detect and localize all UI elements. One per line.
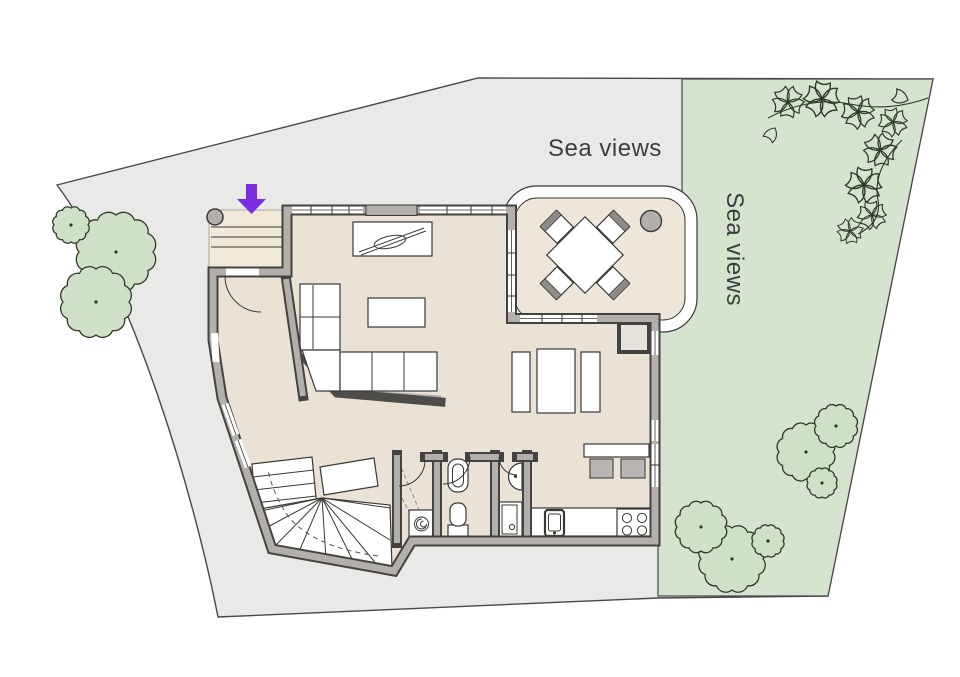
porch-column	[207, 209, 223, 225]
tree-center-dot	[820, 481, 823, 484]
tree-center-dot	[766, 539, 769, 542]
floor-plan-drawing: Sea views Sea views	[0, 0, 960, 677]
tree-center-dot	[834, 424, 837, 427]
tree-center-dot	[730, 557, 733, 560]
breakfast-bar	[584, 444, 649, 457]
dining-chair	[512, 352, 530, 412]
sliding-door-panel	[366, 205, 417, 216]
tree-center-dot	[94, 300, 97, 303]
washing-machine	[409, 510, 434, 538]
sea-views-label-side: Sea views	[721, 192, 748, 306]
sea-views-label-top: Sea views	[548, 135, 662, 162]
tree-center-dot	[699, 525, 702, 528]
dining-chair	[581, 352, 600, 412]
tv-sideboard	[353, 222, 432, 256]
bar-stool	[590, 459, 613, 478]
bar-stool	[621, 459, 645, 478]
dining-set	[512, 349, 600, 413]
tree-center-dot	[69, 223, 72, 226]
terrace	[503, 181, 697, 332]
tree-center-dot	[114, 250, 117, 253]
tree-center-dot	[804, 450, 807, 453]
coffee-table	[368, 298, 425, 327]
dining-table	[537, 349, 575, 413]
floor-plan-page: Sea views Sea views	[0, 0, 960, 677]
wc-bowl	[450, 503, 466, 526]
terrace-column	[641, 211, 662, 232]
stove-cabinet	[619, 323, 649, 352]
wc-cistern	[448, 525, 468, 537]
